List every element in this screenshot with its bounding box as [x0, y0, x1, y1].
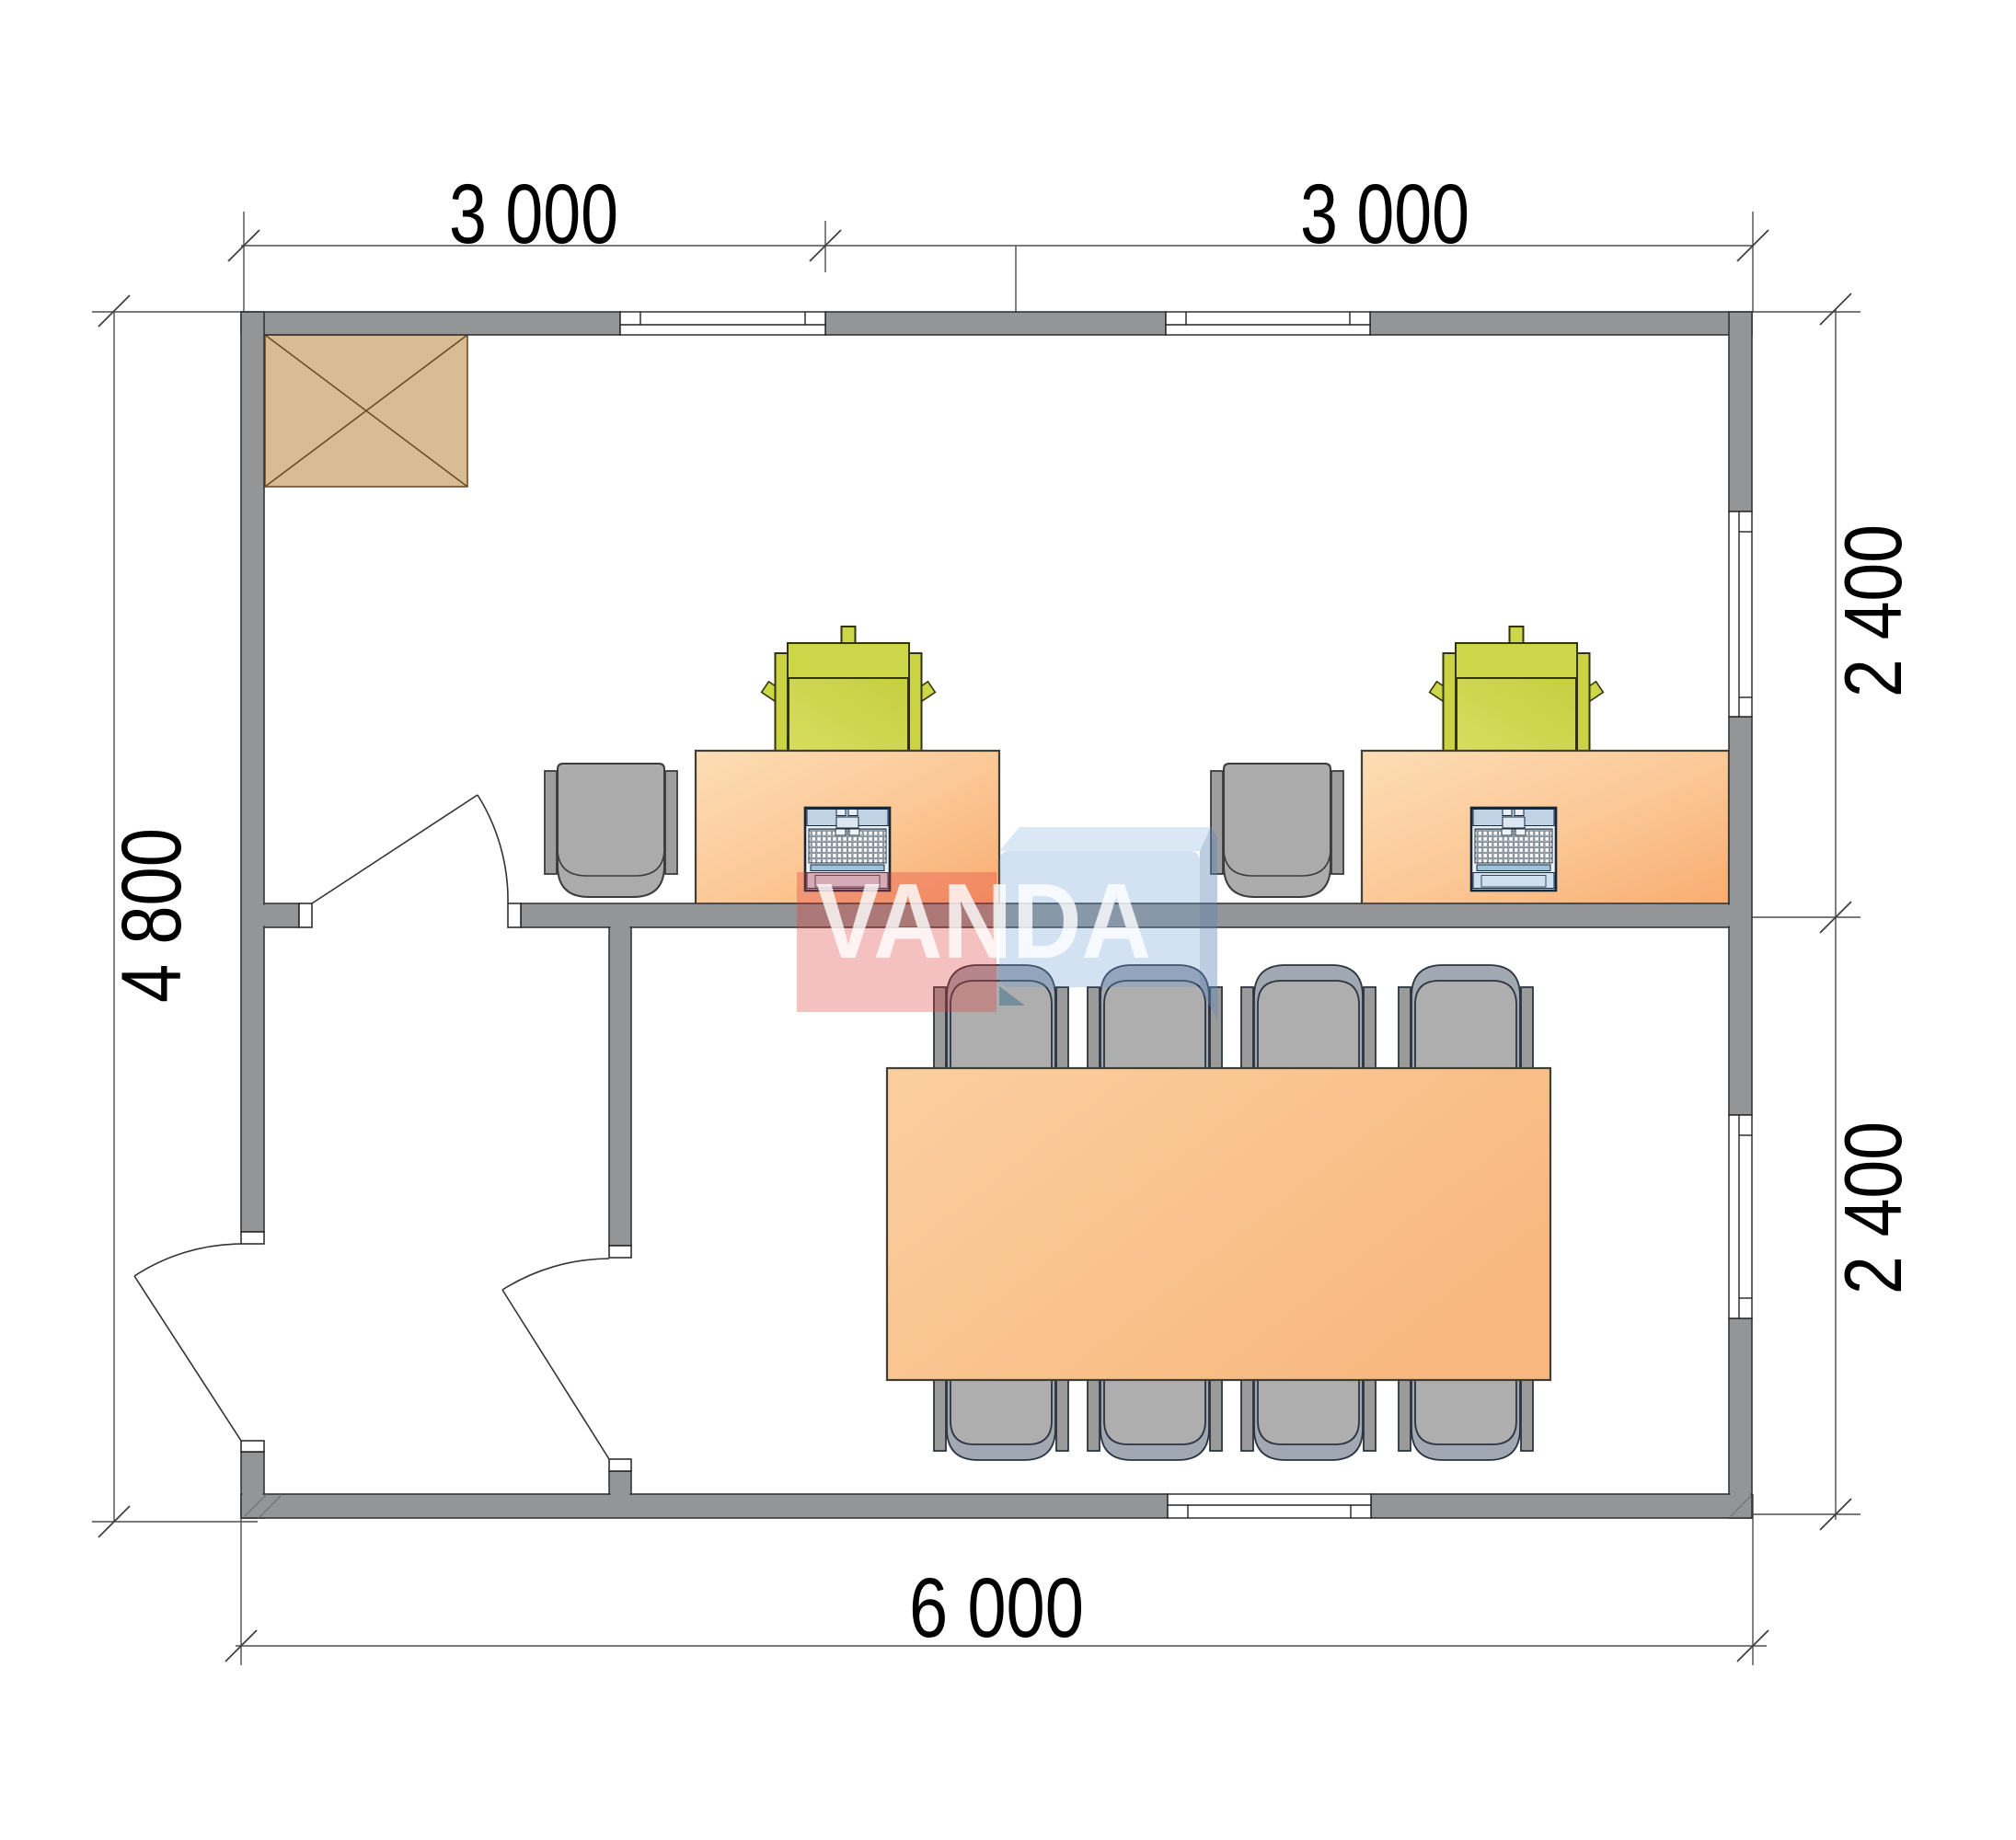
svg-text:2 400: 2 400 [1827, 1121, 1918, 1294]
svg-text:VANDA: VANDA [816, 861, 1151, 981]
svg-text:2 400: 2 400 [1827, 524, 1918, 697]
svg-text:4 800: 4 800 [105, 828, 199, 1003]
svg-text:3 000: 3 000 [449, 167, 618, 261]
svg-text:3 000: 3 000 [1300, 167, 1469, 261]
svg-text:6 000: 6 000 [909, 1561, 1084, 1655]
